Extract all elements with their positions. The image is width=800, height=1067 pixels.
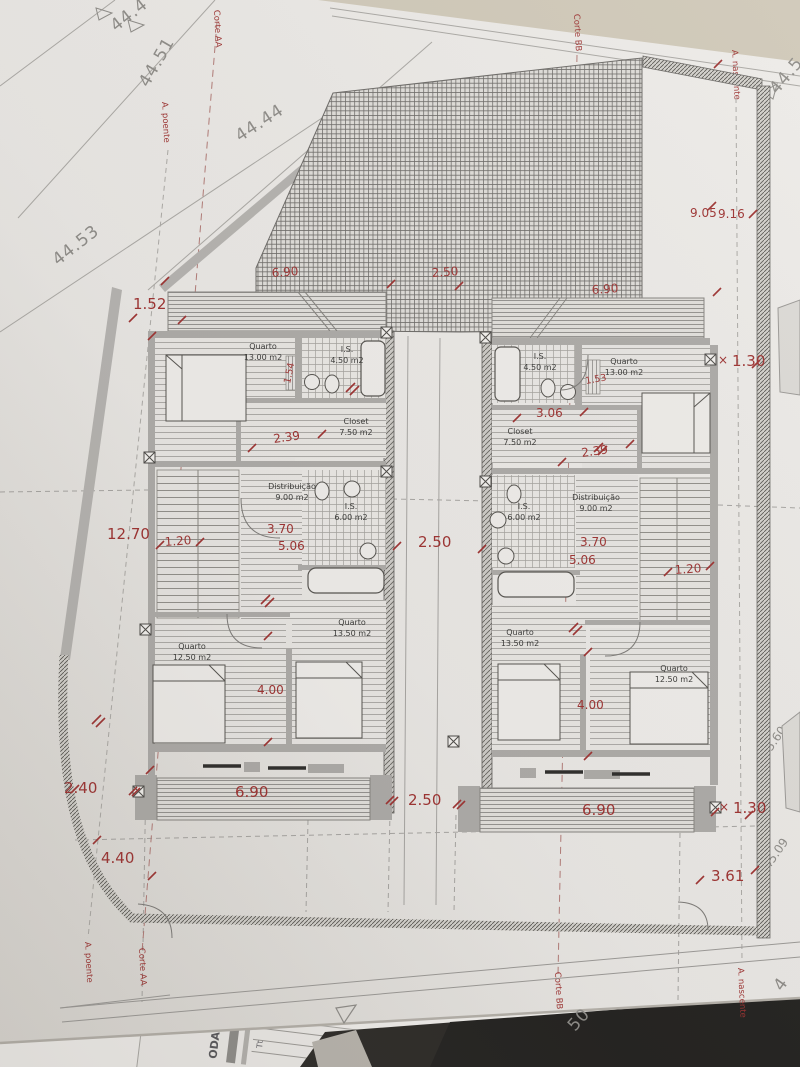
floorplan-photo: ODA Tt 44.4 44.51 44.44 44.53 44.5 45.60… xyxy=(0,0,800,1067)
photo-shading xyxy=(0,0,800,1067)
